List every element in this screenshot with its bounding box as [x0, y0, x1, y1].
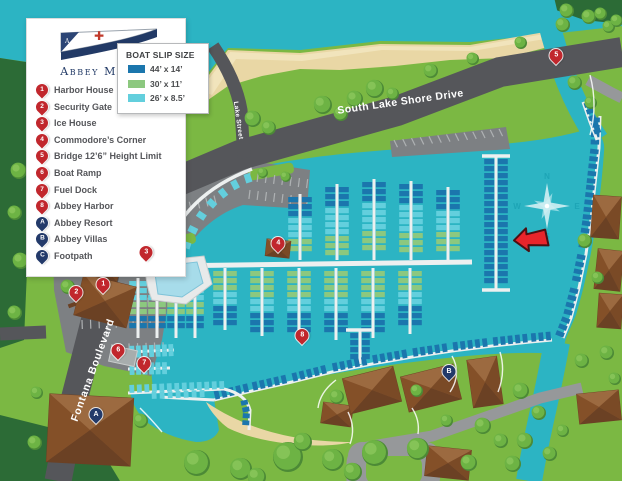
pin-icon: 1 [34, 82, 51, 99]
svg-text:N: N [544, 172, 550, 181]
pin-icon: 8 [34, 198, 51, 215]
legend-item-abbey-harbor: 8Abbey Harbor [36, 200, 177, 212]
slip-size-legend: BOAT SLIP SIZE 44’ x 14’ 30’ x 11’ 26’ x… [117, 43, 209, 114]
map-marker-6: 6 [112, 344, 125, 357]
svg-text:E: E [574, 202, 580, 211]
legend-item-fuel-dock: 7Fuel Dock [36, 184, 177, 196]
pin-icon: B [34, 231, 51, 248]
legend-item-commodores-corner: 4Commodore’s Corner [36, 134, 177, 146]
slip-row-44: 44’ x 14’ [128, 64, 201, 74]
legend-item-abbey-resort: AAbbey Resort [36, 217, 177, 229]
pin-icon: 2 [34, 98, 51, 115]
slip-44-swatch [128, 65, 145, 73]
map-marker-4: 4 [272, 237, 285, 250]
pin-icon: 3 [34, 115, 51, 132]
map-marker-5: 5 [550, 49, 563, 62]
svg-text:A: A [64, 38, 70, 45]
legend-item-ice-house: 3Ice House [36, 117, 177, 129]
map-marker-7: 7 [138, 357, 151, 370]
legend-item-boat-ramp: 6Boat Ramp [36, 167, 177, 179]
marina-map-page: NESW South Lake Shore Drive Lake Street … [0, 0, 622, 481]
svg-text:✚: ✚ [93, 29, 103, 43]
pin-icon: A [34, 214, 51, 231]
slip-30-swatch [128, 80, 145, 88]
legend-item-abbey-villas: BAbbey Villas [36, 233, 177, 245]
pin-icon: 5 [34, 148, 51, 165]
pin-icon: 4 [34, 131, 51, 148]
slip-legend-title: BOAT SLIP SIZE [126, 50, 201, 60]
map-marker-3: 3 [140, 246, 153, 259]
slip-row-26: 26’ x 8.5’ [128, 93, 201, 103]
map-marker-a: A [90, 408, 103, 421]
legend-item-bridge-height-limit: 5Bridge 12’6” Height Limit [36, 150, 177, 162]
svg-text:W: W [513, 202, 521, 211]
slip-row-30: 30’ x 11’ [128, 79, 201, 89]
pin-icon: 7 [34, 181, 51, 198]
map-marker-8: 8 [296, 329, 309, 342]
legend-item-footpath: CFootpath [36, 250, 177, 262]
pin-icon: 6 [34, 164, 51, 181]
map-marker-2: 2 [70, 286, 83, 299]
pin-icon: C [34, 247, 51, 264]
map-marker-1: 1 [97, 278, 110, 291]
map-marker-b: B [443, 365, 456, 378]
slip-26-swatch [128, 94, 145, 102]
